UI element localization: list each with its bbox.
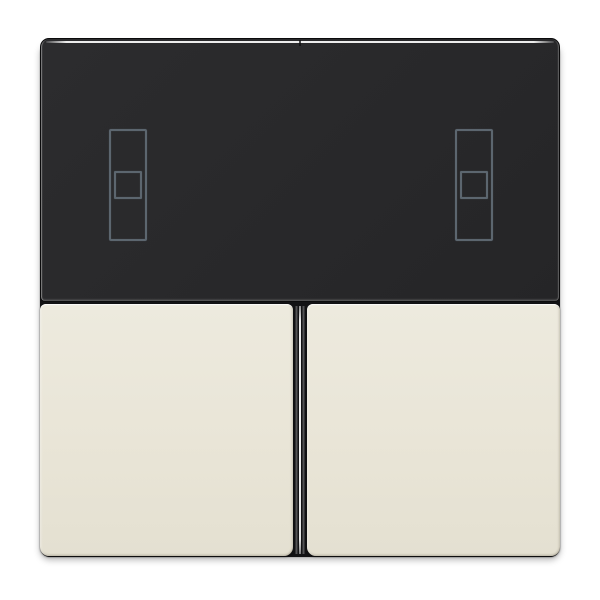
panel-center-seam (299, 40, 301, 46)
right-rocker-button[interactable] (307, 304, 560, 556)
shutter-position-icon-right[interactable] (455, 129, 493, 241)
display-panel (40, 38, 560, 302)
switch-product-image (0, 0, 600, 600)
shutter-position-icon-left[interactable] (109, 129, 147, 241)
rocker-divider-highlight (299, 306, 301, 554)
shutter-slider-square-right (460, 171, 488, 199)
left-rocker-button[interactable] (40, 304, 293, 556)
shutter-slider-square-left (114, 171, 142, 199)
